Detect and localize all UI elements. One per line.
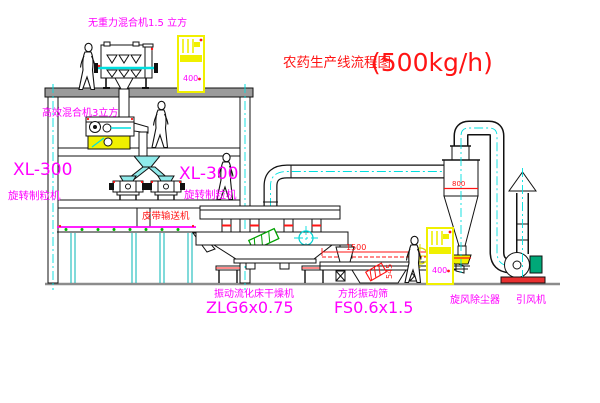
cabinet-top-display: 400	[183, 74, 198, 83]
person-icon	[152, 101, 168, 147]
roof-beam	[45, 88, 253, 97]
label-belt-conveyor: 皮带输送机	[142, 210, 190, 222]
label-fan: 引风机	[516, 293, 546, 306]
cabinet-bottom-display: 400	[432, 266, 447, 275]
label-high-eff-mixer: 高效混合机3立方	[42, 106, 118, 119]
person-icon	[79, 43, 95, 89]
process-flow-diagram: 400	[0, 0, 600, 403]
fan-base	[501, 277, 545, 283]
mixer2-down-pipe	[139, 132, 147, 157]
dim-cyclone: 800	[452, 180, 465, 188]
fluid-bed-dryer	[196, 206, 352, 283]
gravity-free-mixer	[94, 42, 158, 89]
label-cyclone: 旋风除尘器	[450, 293, 500, 306]
dryer-exhaust-duct	[263, 165, 450, 208]
dim-sieve-height: 545	[385, 264, 394, 279]
label-granulator-left-model: XL-300	[13, 160, 72, 180]
floor-beam-2	[48, 148, 250, 156]
granulator-left	[109, 176, 147, 200]
label-granulator-right-model: XL-300	[179, 164, 238, 184]
label-gravity-mixer: 无重力混合机1.5 立方	[88, 16, 187, 29]
control-cabinet-bottom: 400	[427, 228, 453, 284]
label-granulator-right-name: 旋转制粒机	[184, 188, 237, 201]
control-cabinet-top: 400	[178, 36, 204, 92]
diagram-title-capacity: (500kg/h)	[371, 48, 493, 77]
dim-sieve-length: 1500	[346, 243, 366, 252]
label-sieve-model: FS0.6x1.5	[334, 298, 413, 317]
mixer-down-chute	[119, 89, 129, 118]
label-dryer-model: ZLG6x0.75	[206, 298, 294, 317]
belt-conveyor	[57, 225, 215, 283]
label-granulator-left-name: 旋转制粒机	[8, 189, 61, 202]
fan-motor	[530, 256, 542, 273]
